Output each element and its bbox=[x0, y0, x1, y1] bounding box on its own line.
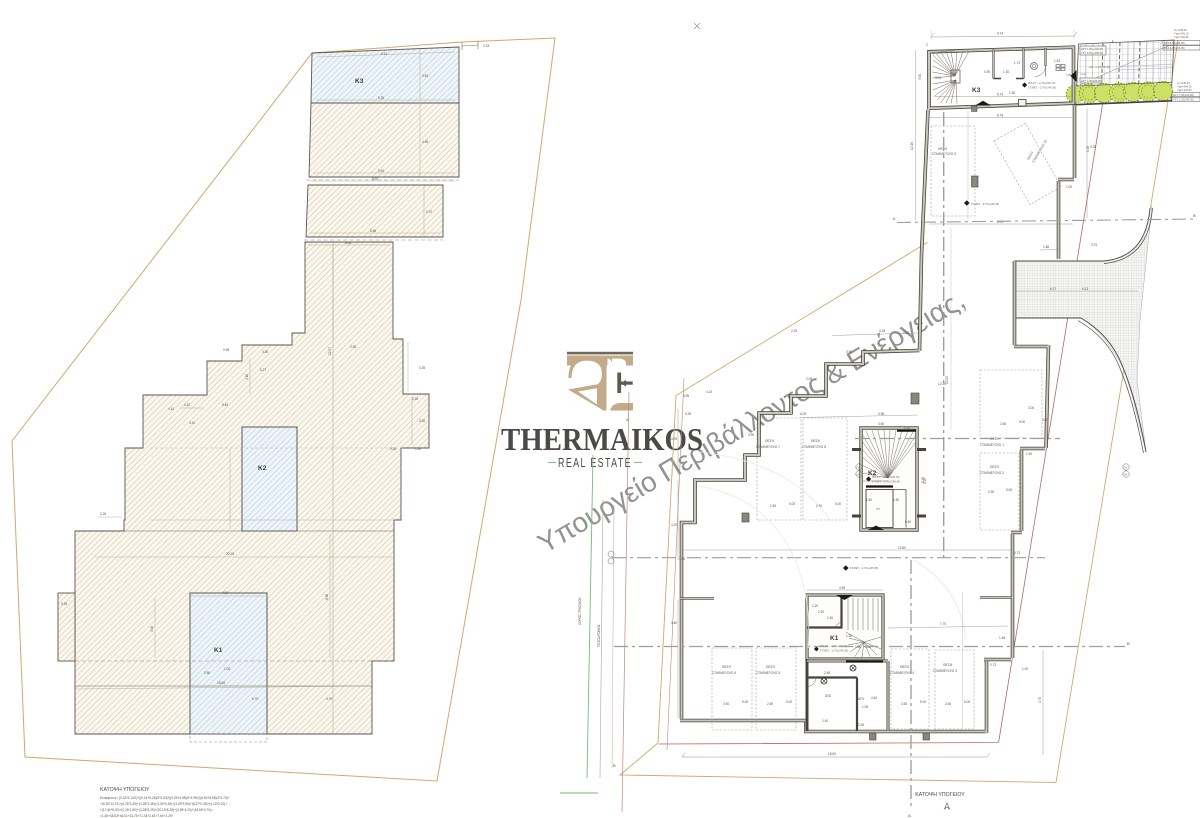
svg-text:4.25: 4.25 bbox=[671, 437, 677, 441]
svg-text:1.88: 1.88 bbox=[1043, 245, 1049, 249]
svg-text:Κ3: Κ3 bbox=[972, 87, 981, 94]
svg-text:3.28: 3.28 bbox=[685, 412, 691, 416]
svg-text:Ο3: Ο3 bbox=[1124, 466, 1128, 470]
svg-text:+(17,60*8,30)+(0,26*1,80)+(3,2: +(17,60*8,30)+(0,26*1,80)+(3,28*8,29)+(2… bbox=[100, 808, 213, 812]
svg-text:4.10: 4.10 bbox=[184, 403, 190, 407]
svg-text:1.50: 1.50 bbox=[1009, 91, 1015, 95]
svg-text:ΣΤ.ΜΕΤ.: -2.70(+245.65): ΣΤ.ΜΕΤ.: -2.70(+245.65) bbox=[1028, 86, 1056, 90]
svg-text:3.25: 3.25 bbox=[879, 329, 885, 333]
svg-text:ΑΠ2: ΑΠ2 bbox=[825, 694, 831, 698]
svg-text:5.00: 5.00 bbox=[920, 700, 926, 704]
svg-text:3.00: 3.00 bbox=[1042, 418, 1048, 422]
svg-text:3.10: 3.10 bbox=[245, 374, 249, 380]
svg-text:5.28: 5.28 bbox=[1090, 145, 1096, 149]
svg-text:8.30: 8.30 bbox=[325, 594, 329, 600]
svg-text:1.50: 1.50 bbox=[1026, 452, 1032, 456]
svg-text:0.82: 0.82 bbox=[903, 331, 909, 335]
svg-text:0.95: 0.95 bbox=[61, 602, 67, 606]
svg-text:ΣΤ.ΜΕΤ.: -2.70(+245.65): ΣΤ.ΜΕΤ.: -2.70(+245.65) bbox=[850, 566, 878, 570]
svg-text:4.70: 4.70 bbox=[1038, 697, 1042, 703]
svg-text:3.25: 3.25 bbox=[262, 350, 268, 354]
svg-text:ΚΑΤΟΨΗ ΥΠΟΓΕΙΟΥ: ΚΑΤΟΨΗ ΥΠΟΓΕΙΟΥ bbox=[100, 787, 150, 793]
svg-text:0.26: 0.26 bbox=[390, 447, 396, 451]
svg-text:ΣΤ.ΜΕΤ.: -2.70(+248.40): ΣΤ.ΜΕΤ.: -2.70(+248.40) bbox=[872, 480, 900, 484]
svg-text:3.38: 3.38 bbox=[1066, 73, 1072, 77]
svg-text:1.48: 1.48 bbox=[999, 636, 1005, 640]
svg-text:REAL ESTATE: REAL ESTATE bbox=[558, 455, 632, 470]
svg-text:6.70: 6.70 bbox=[252, 697, 258, 701]
svg-text:2.26: 2.26 bbox=[412, 397, 418, 401]
svg-text:Ο4: Ο4 bbox=[1124, 473, 1128, 477]
svg-text:ΘΕΣΗ: ΘΕΣΗ bbox=[766, 665, 776, 669]
svg-text:9.14: 9.14 bbox=[381, 52, 387, 56]
svg-text:2.65: 2.65 bbox=[824, 671, 830, 675]
svg-text:1.50: 1.50 bbox=[846, 634, 852, 638]
svg-text:ΙΡΤ: ΙΡΤ bbox=[876, 507, 880, 511]
svg-text:ΚΑΤΟΨΗ ΥΠΟΓΕΙΟΥ: ΚΑΤΟΨΗ ΥΠΟΓΕΙΟΥ bbox=[915, 792, 965, 798]
svg-text:7.70: 7.70 bbox=[940, 622, 946, 626]
svg-text:1.00: 1.00 bbox=[1066, 185, 1072, 189]
svg-text:1.00: 1.00 bbox=[1022, 667, 1028, 671]
svg-text:3.90: 3.90 bbox=[748, 433, 754, 437]
svg-text:5.00: 5.00 bbox=[1006, 488, 1012, 492]
svg-text:2.66: 2.66 bbox=[204, 671, 210, 675]
svg-text:2.25: 2.25 bbox=[791, 329, 797, 333]
svg-text:3.35: 3.35 bbox=[419, 419, 425, 423]
svg-text:ΣΤΑΘΜΕΥΣΗΣ 3: ΣΤΑΘΜΕΥΣΗΣ 3 bbox=[933, 669, 957, 673]
svg-text:2.35: 2.35 bbox=[350, 345, 356, 349]
svg-text:ΣΤΑΘΜΕΥΣΗΣ 5: ΣΤΑΘΜΕΥΣΗΣ 5 bbox=[756, 671, 780, 675]
svg-text:4.40: 4.40 bbox=[871, 696, 877, 700]
svg-text:2.50: 2.50 bbox=[767, 702, 773, 706]
svg-text:Β: Β bbox=[1127, 641, 1130, 646]
svg-text:Υψρ=246.10: Υψρ=246.10 bbox=[1174, 32, 1189, 36]
svg-text:5.48: 5.48 bbox=[222, 403, 228, 407]
svg-text:Δ+=248.35: Δ+=248.35 bbox=[1174, 28, 1187, 32]
svg-text:ΘΕΣΗ: ΘΕΣΗ bbox=[900, 665, 910, 669]
svg-text:1.00: 1.00 bbox=[679, 557, 685, 561]
svg-text:ΘΕΣΗ: ΘΕΣΗ bbox=[811, 439, 821, 443]
svg-text:18.65: 18.65 bbox=[217, 681, 225, 685]
svg-text:1.63: 1.63 bbox=[1054, 59, 1060, 63]
svg-text:Β: Β bbox=[1193, 213, 1196, 218]
svg-text:3.95: 3.95 bbox=[683, 394, 689, 398]
svg-text:ΊΒΛ.ΣΤ.: -2.70(+246.70): ΊΒΛ.ΣΤ.: -2.70(+246.70) bbox=[1027, 81, 1055, 85]
svg-text:1.60: 1.60 bbox=[415, 447, 421, 451]
svg-text:4.95: 4.95 bbox=[422, 140, 428, 144]
svg-text:4.90: 4.90 bbox=[150, 626, 154, 632]
svg-text:5.00: 5.00 bbox=[789, 502, 795, 506]
svg-text:4.90: 4.90 bbox=[222, 591, 228, 595]
svg-text:1.30: 1.30 bbox=[1003, 70, 1009, 74]
svg-text:Υψρ=246.95: Υψρ=246.95 bbox=[1174, 35, 1189, 39]
svg-text:=1,48+38,53+46,51+31,75+71,34+: =1,48+38,53+46,51+31,75+71,34+2,61+7,64+… bbox=[100, 814, 174, 818]
svg-text:2.40: 2.40 bbox=[822, 719, 828, 723]
svg-text:1.90: 1.90 bbox=[858, 723, 864, 727]
svg-text:9.92: 9.92 bbox=[378, 169, 384, 173]
svg-text:Εκπεφνσος= (0,32*9,14/2)+|(9,1: Εκπεφνσος= (0,32*9,14/2)+|(9,14+6,26)/2*… bbox=[100, 796, 229, 800]
svg-text:ΔΣΤ: 1.50(246.95): ΔΣΤ: 1.50(246.95) bbox=[1164, 41, 1185, 45]
svg-text:3.75: 3.75 bbox=[1091, 243, 1097, 247]
svg-text:8.79: 8.79 bbox=[997, 93, 1003, 97]
svg-text:20.15: 20.15 bbox=[226, 552, 234, 556]
svg-text:18.60: 18.60 bbox=[828, 752, 836, 756]
svg-text:ΘΕΣΗ: ΘΕΣΗ bbox=[722, 665, 732, 669]
svg-text:Δ.Ε.: 0.16(246.95): Δ.Ε.: 0.16(246.95) bbox=[1089, 65, 1110, 69]
svg-text:ΣΤΑΘΜΕΥΣΗΣ 2: ΣΤΑΘΜΕΥΣΗΣ 2 bbox=[980, 471, 1004, 475]
svg-text:Δ+=248.35: Δ+=248.35 bbox=[1177, 81, 1190, 85]
svg-text:2.50: 2.50 bbox=[723, 702, 729, 706]
svg-text:6.27: 6.27 bbox=[1050, 287, 1056, 291]
svg-text:Β: Β bbox=[613, 763, 616, 768]
svg-text:6.60: 6.60 bbox=[345, 241, 351, 245]
svg-text:3.35: 3.35 bbox=[419, 366, 425, 370]
svg-text:ΥΣΤ: 1.50(246.95): ΥΣΤ: 1.50(246.95) bbox=[1173, 98, 1194, 102]
svg-text:Υψρ=246.95: Υψρ=246.95 bbox=[1177, 88, 1192, 92]
svg-text:ΔΣΤ: 1.50(246.95): ΔΣΤ: 1.50(246.95) bbox=[1173, 93, 1194, 97]
svg-text:ΣΤΑΘΜΕΥΣΗΣ 1: ΣΤΑΘΜΕΥΣΗΣ 1 bbox=[980, 443, 1004, 447]
svg-text:8.70: 8.70 bbox=[997, 220, 1003, 224]
svg-text:5.00: 5.00 bbox=[742, 700, 748, 704]
svg-text:12.05: 12.05 bbox=[938, 382, 946, 386]
svg-text:2.50: 2.50 bbox=[1000, 422, 1006, 426]
svg-text:ΊΒΛ.ΣΤ.: -2.70(+245.70): ΊΒΛ.ΣΤ.: -2.70(+245.70) bbox=[871, 475, 899, 479]
svg-text:ΘΕΣΗ: ΘΕΣΗ bbox=[990, 465, 1000, 469]
svg-text:ΘΕΣΗ: ΘΕΣΗ bbox=[765, 439, 775, 443]
svg-text:0.90: 0.90 bbox=[984, 70, 990, 74]
svg-text:0.96: 0.96 bbox=[223, 348, 229, 352]
svg-text:ΣΤ.ΜΕΤ.: -2.70(+245.65): ΣΤ.ΜΕΤ.: -2.70(+245.65) bbox=[971, 202, 999, 206]
svg-text:6.05: 6.05 bbox=[800, 412, 806, 416]
svg-text:3.26: 3.26 bbox=[100, 512, 106, 516]
svg-text:Α: Α bbox=[626, 417, 629, 422]
svg-text:ΧΩΡΟΣ ΠΡΑΣΙΝΟΥ: ΧΩΡΟΣ ΠΡΑΣΙΝΟΥ bbox=[578, 596, 582, 625]
svg-text:8.78: 8.78 bbox=[997, 114, 1003, 118]
svg-text:Α: Α bbox=[908, 813, 911, 818]
svg-text:0.60: 0.60 bbox=[905, 520, 911, 524]
svg-text:Κ1: Κ1 bbox=[214, 647, 223, 654]
svg-text:1.50: 1.50 bbox=[893, 498, 899, 502]
svg-text:0.73: 0.73 bbox=[990, 663, 996, 667]
svg-text:4.20: 4.20 bbox=[671, 523, 677, 527]
svg-text:ΣΤ.ΜΕΤ.: -2.70(+245.65): ΣΤ.ΜΕΤ.: -2.70(+245.65) bbox=[820, 649, 848, 653]
svg-text:0.80: 0.80 bbox=[904, 427, 910, 431]
svg-text:4.70: 4.70 bbox=[326, 697, 332, 701]
svg-text:1.73: 1.73 bbox=[1014, 61, 1020, 65]
svg-text:12.97: 12.97 bbox=[328, 347, 332, 355]
svg-text:ΘΕΣΗ: ΘΕΣΗ bbox=[938, 147, 948, 151]
svg-text:12.16: 12.16 bbox=[910, 142, 914, 150]
svg-text:Ο4: Ο4 bbox=[857, 473, 861, 477]
svg-text:2.20: 2.20 bbox=[818, 610, 824, 614]
svg-text:3.50: 3.50 bbox=[878, 422, 884, 426]
svg-text:1.05: 1.05 bbox=[862, 705, 868, 709]
svg-text:3.50: 3.50 bbox=[901, 702, 907, 706]
svg-text:ΑΠ1: ΑΠ1 bbox=[858, 697, 864, 701]
svg-text:Ο3: Ο3 bbox=[857, 466, 861, 470]
svg-text:8.68: 8.68 bbox=[370, 229, 376, 233]
svg-text:ΔΣΤ: 1.50(+246.95): ΔΣΤ: 1.50(+246.95) bbox=[1081, 47, 1103, 51]
svg-text:1.60: 1.60 bbox=[827, 616, 833, 620]
svg-text:2.90: 2.90 bbox=[988, 490, 994, 494]
svg-text:5.00: 5.00 bbox=[835, 502, 841, 506]
svg-text:1.00: 1.00 bbox=[224, 667, 230, 671]
svg-text:Κ3: Κ3 bbox=[355, 78, 364, 85]
svg-text:3.00: 3.00 bbox=[1028, 406, 1034, 410]
svg-text:2.50: 2.50 bbox=[770, 504, 776, 508]
svg-text:5.73: 5.73 bbox=[1014, 551, 1020, 555]
svg-text:3.70: 3.70 bbox=[426, 210, 432, 214]
svg-text:Υψρ=246.10: Υψρ=246.10 bbox=[1177, 85, 1192, 89]
svg-text:Κ1: Κ1 bbox=[830, 635, 839, 642]
svg-text:9.14: 9.14 bbox=[997, 32, 1003, 36]
svg-text:2: 2 bbox=[926, 43, 928, 47]
svg-text:0.90: 0.90 bbox=[846, 350, 852, 354]
svg-text:6.27: 6.27 bbox=[260, 368, 266, 372]
svg-text:3.04: 3.04 bbox=[935, 76, 941, 80]
svg-text:19.80: 19.80 bbox=[898, 546, 906, 550]
svg-text:6.95: 6.95 bbox=[923, 478, 927, 484]
svg-text:4.10: 4.10 bbox=[706, 390, 712, 394]
svg-text:9.28: 9.28 bbox=[378, 96, 384, 100]
svg-text:3.98: 3.98 bbox=[878, 412, 884, 416]
svg-text:ΥΣΤ: 1.50(+246.95): ΥΣΤ: 1.50(+246.95) bbox=[1081, 51, 1103, 55]
svg-text:0.33: 0.33 bbox=[483, 44, 489, 48]
svg-text:ΔΣΤ: 1.50(246.95): ΔΣΤ: 1.50(246.95) bbox=[1081, 79, 1102, 83]
svg-text:ΠΕΖΟΔΡΟΜΟΣ: ΠΕΖΟΔΡΟΜΟΣ bbox=[597, 624, 601, 647]
svg-text:Κ2: Κ2 bbox=[258, 465, 267, 472]
svg-text:ΣΤΑΘΜΕΥΣΗΣ 6: ΣΤΑΘΜΕΥΣΗΣ 6 bbox=[712, 671, 736, 675]
svg-text:1.50: 1.50 bbox=[866, 498, 872, 502]
svg-text:3.50: 3.50 bbox=[918, 74, 922, 80]
svg-text:3.53: 3.53 bbox=[422, 74, 428, 78]
svg-text:ΣΤΑΘΜΕΥΣΗΣ 7: ΣΤΑΘΜΕΥΣΗΣ 7 bbox=[756, 445, 780, 449]
svg-text:2.50: 2.50 bbox=[945, 702, 951, 706]
svg-text:8.92: 8.92 bbox=[372, 177, 378, 181]
svg-text:5.28: 5.28 bbox=[1086, 146, 1090, 152]
svg-text:5.00: 5.00 bbox=[1019, 420, 1025, 424]
svg-text:ΥΣΤ: 1.50(246.95): ΥΣΤ: 1.50(246.95) bbox=[1164, 46, 1185, 50]
svg-text:2.41: 2.41 bbox=[1081, 72, 1087, 76]
svg-text:+(5,30*12,97)+(6,76*3,35)+(2,2: +(5,30*12,97)+(6,76*3,35)+(2,28*3,35)+(1… bbox=[100, 802, 227, 806]
svg-text:5.00: 5.00 bbox=[964, 700, 970, 704]
svg-text:4.10: 4.10 bbox=[168, 407, 174, 411]
svg-text:Κ: Κ bbox=[893, 216, 896, 221]
svg-text:1.20: 1.20 bbox=[812, 604, 818, 608]
svg-text:ΣΤΑΘΜΕΥΣΗΣ 8: ΣΤΑΘΜΕΥΣΗΣ 8 bbox=[802, 445, 826, 449]
svg-text:4.90: 4.90 bbox=[839, 586, 845, 590]
svg-text:6.13: 6.13 bbox=[1082, 287, 1088, 291]
svg-text:2.05: 2.05 bbox=[806, 377, 812, 381]
svg-text:3.10: 3.10 bbox=[189, 421, 195, 425]
svg-text:4.60: 4.60 bbox=[671, 621, 677, 625]
svg-text:5.00: 5.00 bbox=[786, 700, 792, 704]
svg-text:ΘΕΣΙ4: ΘΕΣΙ4 bbox=[943, 663, 952, 667]
